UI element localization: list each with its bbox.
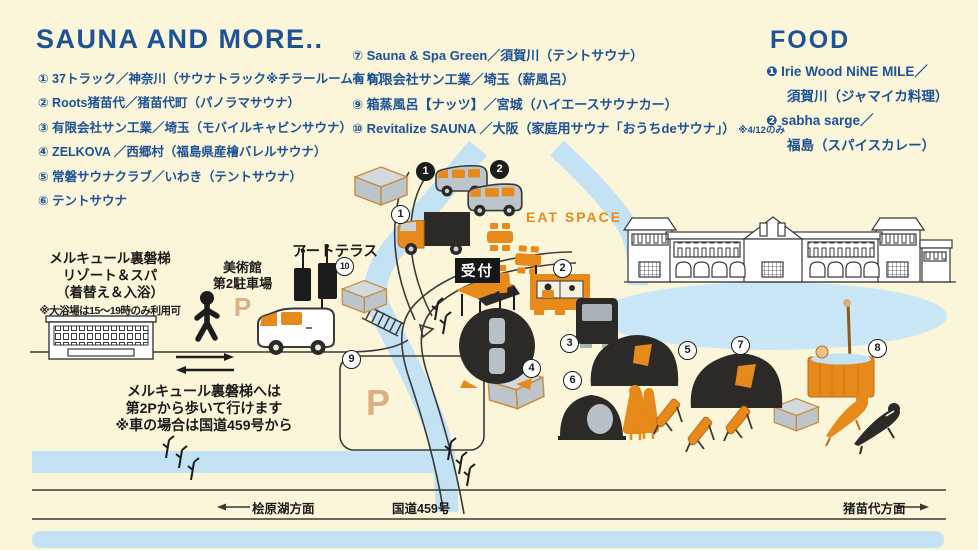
tent-7	[691, 354, 782, 409]
map-marker-6: 6	[563, 371, 582, 390]
art-terrace-label: アートテラス	[292, 240, 378, 261]
hotel-label: メルキュール裏磐梯 リゾート＆スパ （着替え＆入浴） ※大浴場は15～19時のみ…	[24, 250, 196, 320]
map-marker-2: 2	[553, 259, 572, 278]
museum-parking-label: 美術館 第2駐車場 P	[200, 260, 285, 319]
sauna-item-5: ⑤ 常磐サウナクラブ／いわき（テントサウナ）	[38, 165, 390, 189]
map-marker-5: 5	[678, 341, 697, 360]
sauna-list-left: ① 37トラック／神奈川（サウナトラック※チラールーム有り） ② Roots猪苗…	[38, 67, 390, 213]
map-marker-1: 1	[391, 205, 410, 224]
walk-note-label: メルキュール裏磐梯へは 第2Pから歩いて行けます ※車の場合は国道459号から	[84, 383, 324, 434]
sauna-item-1: ① 37トラック／神奈川（サウナトラック※チラールーム有り）	[38, 67, 390, 91]
map-marker-9: 9	[342, 350, 361, 369]
reclining-figures	[826, 393, 900, 454]
museum-building	[624, 217, 956, 282]
cabin-van	[576, 298, 618, 348]
eat-space-label: EAT SPACE	[526, 209, 622, 225]
hotel-building	[46, 316, 156, 359]
arrow-left-icon	[217, 504, 226, 511]
road-label-route459: 国道459号	[392, 498, 450, 517]
map-marker-food-1: 1	[416, 162, 435, 181]
highway	[32, 490, 946, 519]
food-legend-title: FOOD	[770, 26, 850, 55]
sauna-item-6: ⑥ テントサウナ	[38, 189, 390, 213]
map-marker-4: 4	[522, 359, 541, 378]
reception-label: 受付	[455, 258, 500, 283]
event-map-poster: SAUNA AND MORE.. ① 37トラック／神奈川（サウナトラック※チラ…	[0, 0, 978, 550]
main-parking-p-icon: P	[366, 382, 390, 424]
walk-arrows	[176, 353, 234, 374]
food-item-1-name: ❶ Irie Wood NiNE MILE／	[766, 60, 948, 85]
sauna-item-7: ⑦ Sauna & Spa Green／須賀川（テントサウナ）	[352, 44, 785, 68]
sauna-list-right: ⑦ Sauna & Spa Green／須賀川（テントサウナ） ⑧ 有限会社サン…	[352, 44, 785, 144]
poncho-people	[623, 385, 659, 440]
food-truck-2	[468, 184, 522, 216]
road-label-inawashiro: 猪苗代方面	[843, 498, 906, 517]
sauna-item-4: ④ ZELKOVA ／西郷村（福島県産檜バレルサウナ）	[38, 140, 390, 164]
arrow-right-icon	[224, 353, 234, 361]
map-marker-3: 3	[560, 334, 579, 353]
food-list: ❶ Irie Wood NiNE MILE／ 須賀川（ジャマイカ料理） ❷ sa…	[766, 60, 948, 158]
sauna-item-3: ③ 有限会社サン工業／埼玉（モバイルキャビンサウナ）	[38, 116, 390, 140]
food-item-1-place: 須賀川（ジャマイカ料理）	[766, 85, 948, 110]
dome-tent	[558, 395, 626, 440]
sauna-item-2: ② Roots猪苗代／猪苗代町（パノラマサウナ）	[38, 91, 390, 115]
road-label-hibara: 桧原湖方面	[252, 498, 315, 517]
hotel-note: ※大浴場は15～19時のみ利用可	[24, 303, 196, 320]
sauna-legend-title: SAUNA AND MORE..	[36, 24, 324, 55]
map-marker-food-2: 2	[490, 160, 509, 179]
food-item-2-place: 福島（スパイスカレー）	[766, 134, 948, 159]
arrow-left-icon	[176, 366, 186, 374]
map-marker-7: 7	[731, 336, 750, 355]
sauna-item-9: ⑨ 箱蒸風呂【ナッツ】／宮城（ハイエースサウナカー）	[352, 93, 785, 117]
sauna-item-8: ⑧ 有限会社サン工業／埼玉（薪風呂）	[352, 68, 785, 92]
parking-p-icon: P	[200, 295, 285, 319]
sauna-item-10: ⑩ Revitalize SAUNA ／大阪（家庭用サウナ「おうちdeサウナ」）…	[352, 117, 785, 143]
arrow-right-icon	[920, 504, 929, 511]
map-marker-10: 10	[335, 257, 354, 276]
food-item-2-name: ❷ sabha sarge／	[766, 109, 948, 134]
map-marker-8: 8	[868, 339, 887, 358]
